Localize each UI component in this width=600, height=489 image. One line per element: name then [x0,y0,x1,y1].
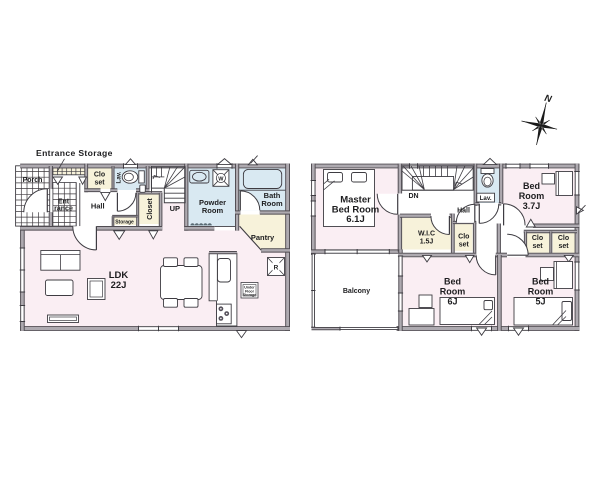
svg-text:Clo: Clo [94,172,105,179]
svg-text:Storage: Storage [243,293,256,297]
svg-text:Lav.: Lav. [480,195,492,202]
svg-text:Bed: Bed [523,181,540,191]
svg-text:W: W [218,176,224,182]
svg-text:DN: DN [408,193,418,200]
svg-text:Bed: Bed [444,277,461,287]
svg-text:R: R [274,264,279,271]
svg-text:Balcony: Balcony [343,288,370,295]
svg-text:Pantry: Pantry [251,233,275,242]
svg-text:Hall: Hall [457,207,470,214]
svg-text:Clo: Clo [558,235,569,242]
svg-text:6J: 6J [447,297,457,307]
svg-text:Entrance Storage: Entrance Storage [36,148,113,158]
svg-text:Bed: Bed [532,277,549,287]
svg-text:Closet: Closet [147,198,154,220]
svg-text:UP: UP [170,204,180,213]
svg-text:1.5J: 1.5J [420,239,434,246]
svg-text:22J: 22J [111,280,127,291]
svg-text:Hall: Hall [91,202,105,211]
svg-text:Room: Room [202,206,224,215]
svg-text:set: set [459,242,470,249]
svg-text:Room: Room [519,191,545,201]
svg-text:set: set [532,243,543,250]
svg-text:Clo: Clo [532,235,543,242]
svg-text:Porch: Porch [23,177,43,184]
svg-text:set: set [558,243,569,250]
svg-text:Clo: Clo [458,234,469,241]
svg-text:Storage: Storage [115,219,134,225]
svg-text:Room: Room [261,199,283,208]
svg-text:Lav.: Lav. [116,171,123,183]
svg-text:3.7J: 3.7J [523,201,541,211]
svg-text:rance: rance [54,206,73,213]
svg-text:5J: 5J [535,297,545,307]
svg-text:set: set [94,180,105,187]
svg-text:Ent: Ent [58,199,70,206]
svg-text:Room: Room [528,287,554,297]
svg-text:6.1J: 6.1J [346,214,365,225]
svg-text:W.I.C: W.I.C [418,231,435,238]
svg-text:Room: Room [440,287,466,297]
